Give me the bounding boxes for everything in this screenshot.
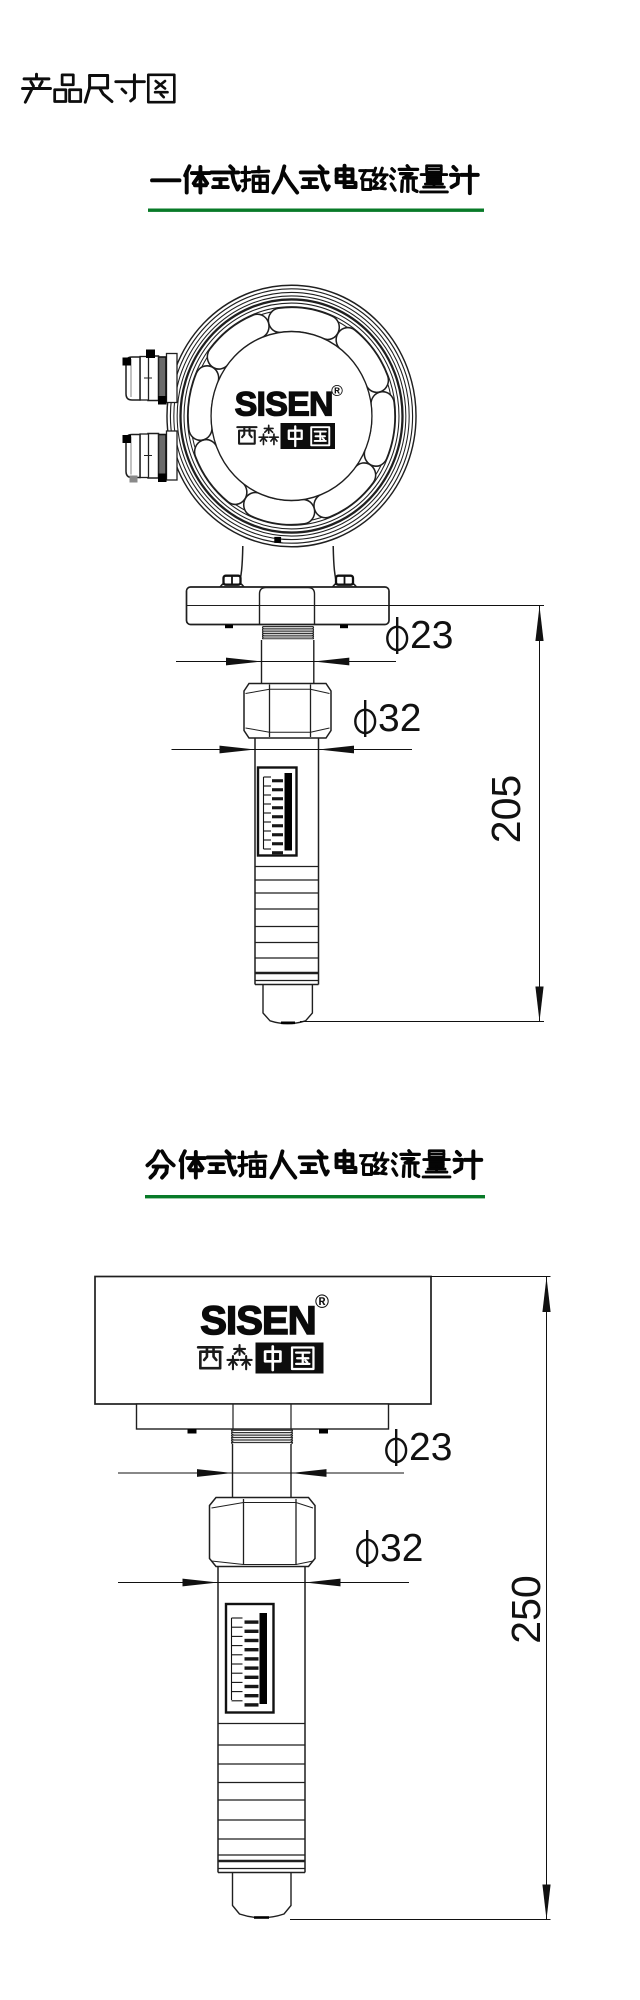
svg-text:®: ® bbox=[331, 383, 343, 400]
svg-text:SISEN: SISEN bbox=[200, 1299, 316, 1343]
svg-text:32: 32 bbox=[380, 1527, 423, 1570]
svg-text:23: 23 bbox=[409, 1426, 452, 1469]
svg-text:SISEN: SISEN bbox=[235, 386, 333, 424]
svg-text:205: 205 bbox=[483, 775, 529, 843]
svg-text:32: 32 bbox=[378, 697, 421, 740]
svg-text:®: ® bbox=[315, 1292, 329, 1313]
svg-text:250: 250 bbox=[503, 1575, 549, 1643]
svg-text:23: 23 bbox=[410, 614, 453, 657]
